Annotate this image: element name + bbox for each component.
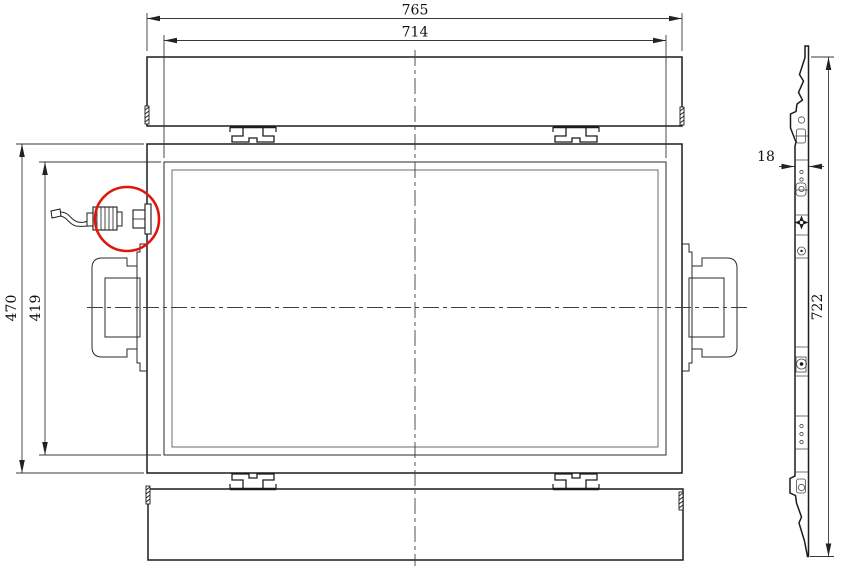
flap-hinge-tab	[680, 107, 684, 125]
front-view	[51, 50, 749, 566]
screw-center-icon	[800, 250, 802, 252]
dimension-side-depth: 18	[757, 149, 824, 167]
cable-connector	[51, 204, 151, 234]
dim-label-722: 722	[810, 294, 826, 321]
bottom-flap-panel	[148, 489, 683, 560]
plug-tip	[117, 212, 122, 226]
flap-hinge-tab	[145, 106, 149, 124]
chassis-outline	[147, 144, 682, 473]
dim-label-470: 470	[4, 295, 20, 322]
dim-label-419: 419	[28, 295, 44, 322]
mounting-clip	[553, 474, 599, 489]
screw-center-icon	[800, 362, 804, 366]
star-fastener-hub-icon	[800, 221, 804, 225]
plug-collar	[87, 213, 93, 226]
side-view	[790, 46, 809, 557]
dim-label-765: 765	[402, 3, 429, 19]
socket-flange	[145, 204, 151, 234]
flap-hinge-tab	[679, 492, 683, 510]
technical-drawing: 765 714 470 419 18 722	[0, 0, 856, 580]
dimension-side-height: 722	[810, 57, 834, 557]
dim-label-714: 714	[402, 25, 429, 41]
dim-label-18: 18	[757, 149, 775, 165]
mounting-clip	[230, 474, 276, 489]
mounting-clip	[553, 127, 599, 142]
top-flap-panel	[147, 57, 682, 126]
drawing-canvas: 765 714 470 419 18 722	[0, 0, 856, 580]
cable-terminal	[51, 209, 61, 218]
dimension-overall-height: 470	[4, 144, 144, 473]
dimension-inner-height: 419	[28, 162, 161, 455]
mounting-clip	[230, 127, 276, 142]
cable	[60, 216, 88, 226]
flap-hinge-tab	[146, 486, 150, 504]
